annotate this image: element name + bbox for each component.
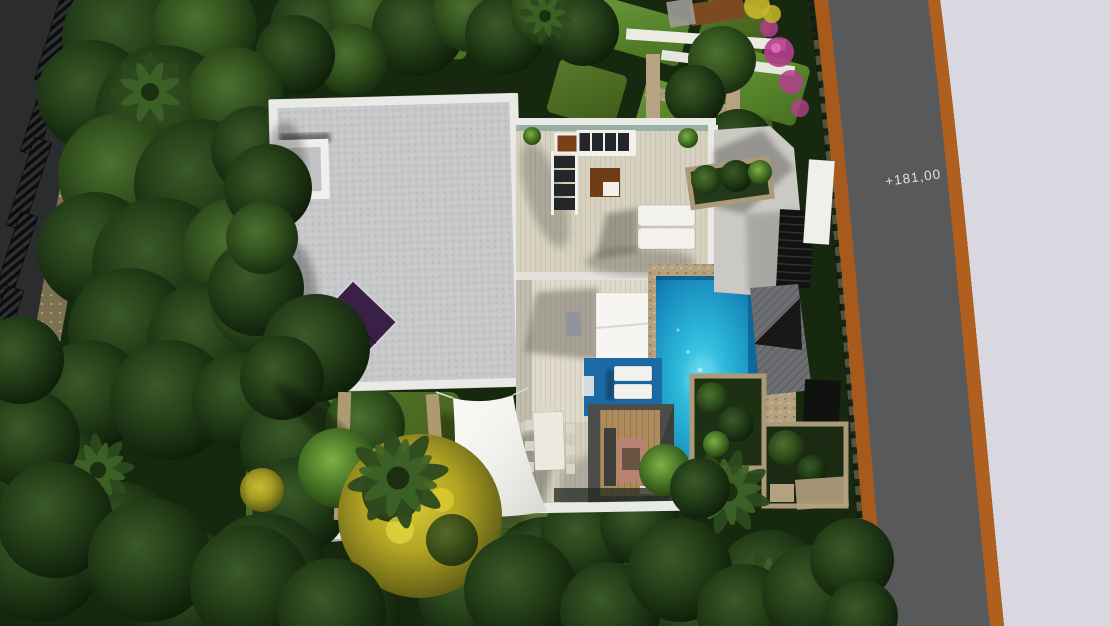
coffee-table-tray: [603, 182, 619, 196]
scene-svg: +181,00: [0, 0, 1110, 626]
gate-pillar: [803, 159, 835, 245]
yellow-shrub: [240, 468, 284, 512]
aerial-render: +181,00: [0, 0, 1110, 626]
top-structure: [666, 0, 696, 28]
in-pool-lounger: [614, 384, 652, 399]
bougainvillea: [779, 70, 803, 94]
sun-lounger: [638, 205, 695, 226]
upper-terrace: [511, 118, 718, 282]
stone-path: [795, 476, 849, 510]
sun-lounger: [638, 228, 695, 249]
yellow-shrub: [763, 5, 781, 23]
stone-pillar: [770, 484, 794, 502]
canopy-shadow: [524, 288, 598, 360]
side-table: [565, 311, 582, 336]
stone-pillar: [646, 54, 660, 122]
bougainvillea: [791, 99, 809, 117]
in-pool-lounger: [614, 366, 652, 381]
dining-table: [533, 411, 565, 470]
terrace-plant: [678, 128, 698, 148]
terrace-plant: [523, 127, 541, 145]
corner-planter: [556, 134, 578, 153]
